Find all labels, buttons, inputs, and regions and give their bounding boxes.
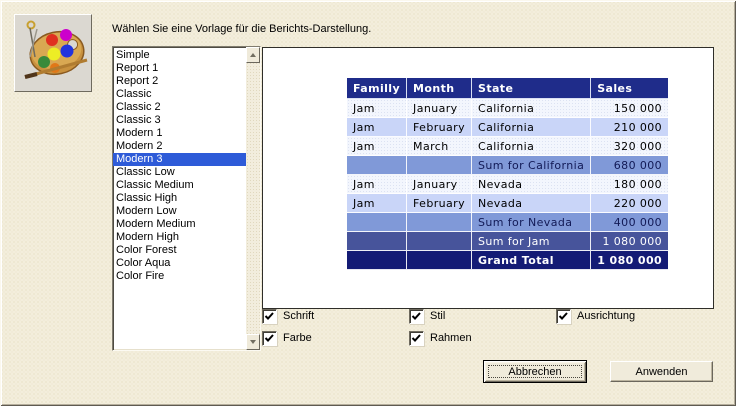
list-item-modern-medium[interactable]: Modern Medium — [113, 218, 246, 231]
palette-icon — [14, 14, 92, 92]
checkbox-schrift-box[interactable] — [262, 309, 277, 324]
table-cell: Grand Total — [472, 251, 591, 270]
checkbox-schrift[interactable]: Schrift — [262, 309, 314, 323]
listbox-scrollbar[interactable] — [246, 47, 260, 350]
scroll-down-arrow-icon — [250, 340, 256, 344]
table-cell — [347, 213, 407, 232]
table-cell: 210 000 — [591, 118, 668, 137]
list-item-color-fire[interactable]: Color Fire — [113, 270, 246, 283]
checkbox-stil-label[interactable]: Stil — [430, 310, 445, 322]
list-item-classic[interactable]: Classic — [113, 88, 246, 101]
checkbox-rahmen[interactable]: Rahmen — [409, 331, 472, 345]
table-row: Sum for Jam1 080 000 — [347, 232, 668, 251]
table-cell: 400 000 — [591, 213, 668, 232]
check-icon — [557, 310, 570, 323]
list-item-color-aqua[interactable]: Color Aqua — [113, 257, 246, 270]
palette-icon-image — [15, 15, 89, 89]
list-item-classic-low[interactable]: Classic Low — [113, 166, 246, 179]
list-item-modern-3[interactable]: Modern 3 — [113, 153, 246, 166]
table-cell: March — [407, 137, 472, 156]
template-selection-dialog: Wählen Sie eine Vorlage für die Berichts… — [0, 0, 736, 406]
list-item-modern-2[interactable]: Modern 2 — [113, 140, 246, 153]
table-cell: Sum for California — [472, 156, 591, 175]
list-item-report-2[interactable]: Report 2 — [113, 75, 246, 88]
scroll-down-button[interactable] — [246, 334, 260, 350]
table-cell: 150 000 — [591, 99, 668, 118]
table-row: JamFebruaryNevada220 000 — [347, 194, 668, 213]
list-item-modern-1[interactable]: Modern 1 — [113, 127, 246, 140]
table-cell: Nevada — [472, 194, 591, 213]
table-cell — [407, 251, 472, 270]
list-item-modern-high[interactable]: Modern High — [113, 231, 246, 244]
template-listbox-items: SimpleReport 1Report 2ClassicClassic 2Cl… — [113, 47, 246, 350]
header-month: Month — [407, 78, 472, 99]
table-cell — [347, 251, 407, 270]
table-cell: Sum for Jam — [472, 232, 591, 251]
checkbox-stil[interactable]: Stil — [409, 309, 445, 323]
header-familly: Familly — [347, 78, 407, 99]
table-cell: 1 080 000 — [591, 232, 668, 251]
table-row: JamFebruaryCalifornia210 000 — [347, 118, 668, 137]
table-cell: 320 000 — [591, 137, 668, 156]
list-item-classic-medium[interactable]: Classic Medium — [113, 179, 246, 192]
table-cell — [347, 232, 407, 251]
check-icon — [263, 310, 276, 323]
list-item-report-1[interactable]: Report 1 — [113, 62, 246, 75]
table-cell: January — [407, 175, 472, 194]
checkbox-schrift-label[interactable]: Schrift — [283, 310, 314, 322]
report-preview-panel: Familly Month State Sales JamJanuaryCali… — [262, 47, 714, 309]
table-cell: Jam — [347, 194, 407, 213]
list-item-color-forest[interactable]: Color Forest — [113, 244, 246, 257]
table-row: JamJanuaryNevada180 000 — [347, 175, 668, 194]
table-cell: 220 000 — [591, 194, 668, 213]
table-cell: California — [472, 137, 591, 156]
apply-button[interactable]: Anwenden — [610, 361, 713, 382]
table-cell: Jam — [347, 137, 407, 156]
list-item-classic-high[interactable]: Classic High — [113, 192, 246, 205]
scroll-up-button[interactable] — [246, 47, 260, 63]
table-cell: 1 080 000 — [591, 251, 668, 270]
checkbox-ausrichtung-box[interactable] — [556, 309, 571, 324]
template-listbox[interactable]: SimpleReport 1Report 2ClassicClassic 2Cl… — [112, 46, 261, 351]
checkbox-ausrichtung-label[interactable]: Ausrichtung — [577, 310, 635, 322]
checkbox-rahmen-label[interactable]: Rahmen — [430, 332, 472, 344]
check-icon — [410, 310, 423, 323]
checkbox-stil-box[interactable] — [409, 309, 424, 324]
table-cell: Jam — [347, 99, 407, 118]
header-sales: Sales — [591, 78, 668, 99]
cancel-button[interactable]: Abbrechen — [483, 360, 587, 383]
checkbox-farbe-label[interactable]: Farbe — [283, 332, 312, 344]
header-state: State — [472, 78, 591, 99]
table-cell: January — [407, 99, 472, 118]
checkbox-rahmen-box[interactable] — [409, 331, 424, 346]
table-cell: Jam — [347, 118, 407, 137]
table-cell: California — [472, 99, 591, 118]
table-cell: Nevada — [472, 175, 591, 194]
check-icon — [410, 332, 423, 345]
scroll-up-arrow-icon — [250, 53, 256, 57]
table-header-row: Familly Month State Sales — [347, 78, 668, 99]
check-icon — [263, 332, 276, 345]
table-row: Grand Total1 080 000 — [347, 251, 668, 270]
checkbox-ausrichtung[interactable]: Ausrichtung — [556, 309, 635, 323]
table-cell: Jam — [347, 175, 407, 194]
table-row: JamJanuaryCalifornia150 000 — [347, 99, 668, 118]
table-cell — [347, 156, 407, 175]
table-cell: February — [407, 194, 472, 213]
table-cell: California — [472, 118, 591, 137]
table-cell: 180 000 — [591, 175, 668, 194]
table-cell: 680 000 — [591, 156, 668, 175]
table-row: Sum for Nevada400 000 — [347, 213, 668, 232]
list-item-simple[interactable]: Simple — [113, 49, 246, 62]
checkbox-farbe[interactable]: Farbe — [262, 331, 312, 345]
list-item-classic-3[interactable]: Classic 3 — [113, 114, 246, 127]
preview-table-body: JamJanuaryCalifornia150 000JamFebruaryCa… — [347, 99, 668, 270]
checkbox-farbe-box[interactable] — [262, 331, 277, 346]
report-preview-table: Familly Month State Sales JamJanuaryCali… — [347, 78, 668, 270]
table-row: Sum for California680 000 — [347, 156, 668, 175]
table-row: JamMarchCalifornia320 000 — [347, 137, 668, 156]
table-cell — [407, 232, 472, 251]
table-cell: February — [407, 118, 472, 137]
scrollbar-track[interactable] — [246, 63, 260, 334]
table-cell — [407, 156, 472, 175]
dialog-instruction-text: Wählen Sie eine Vorlage für die Berichts… — [112, 23, 371, 35]
list-item-modern-low[interactable]: Modern Low — [113, 205, 246, 218]
table-cell — [407, 213, 472, 232]
list-item-classic-2[interactable]: Classic 2 — [113, 101, 246, 114]
table-cell: Sum for Nevada — [472, 213, 591, 232]
